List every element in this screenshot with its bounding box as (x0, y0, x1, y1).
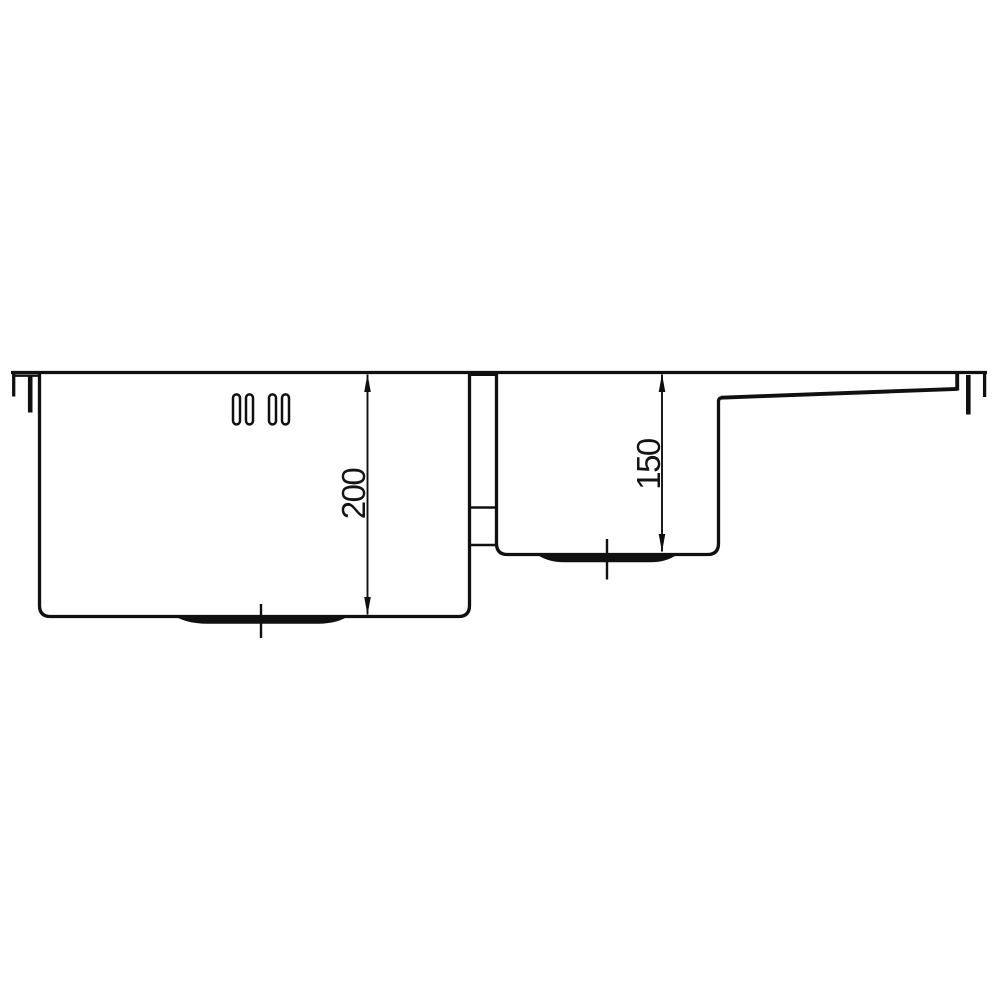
svg-text:150: 150 (630, 438, 667, 490)
svg-text:200: 200 (335, 468, 372, 520)
